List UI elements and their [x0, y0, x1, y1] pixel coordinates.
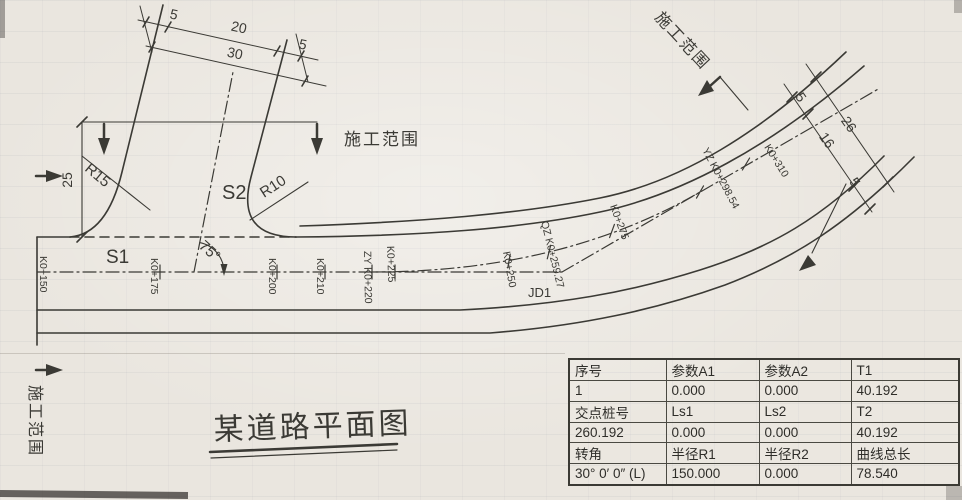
main-road-top-inner-edge: [296, 66, 864, 237]
dim-branch-right-5: 5: [298, 35, 309, 52]
cell-a2-value: 0.000: [759, 381, 851, 402]
table-row: 260.192 0.000 0.000 40.192: [569, 422, 959, 443]
station-k0250: K0+250: [500, 250, 518, 288]
angle-arc-arrowhead: [221, 264, 228, 276]
dim-right-26: 26: [838, 113, 860, 135]
dim-left-25: 25: [59, 172, 75, 188]
scan-artifact-top-right: [954, 0, 962, 13]
table-row: 30° 0′ 0″ (L) 150.000 0.000 78.540: [569, 464, 959, 485]
dim-branch-left-5: 5: [169, 5, 180, 22]
branch-right-edge-r10-fillet: [248, 40, 296, 237]
main-road-bottom-outer-edge: [37, 157, 914, 333]
label-s1: S1: [106, 247, 129, 268]
construction-limit-down-arrows: [98, 124, 323, 155]
table-row: 1 0.000 0.000 40.192: [569, 381, 959, 402]
cell-length-header: 曲线总长: [851, 443, 959, 464]
branch-centerline: [194, 72, 233, 272]
cell-r2-value: 0.000: [759, 464, 851, 485]
cell-jd-header: 交点桩号: [569, 401, 666, 422]
dim-right-top-5: 5: [792, 89, 810, 105]
station-ticks: [160, 158, 750, 279]
cell-length-value: 78.540: [851, 464, 959, 485]
station-zy-k0220: ZY K0+220: [361, 251, 374, 304]
cell-zhuanjiao-header: 转角: [569, 443, 666, 464]
cell-r1-value: 150.000: [666, 464, 759, 485]
cell-ls1-value: 0.000: [666, 422, 759, 443]
cell-a2-header: 参数A2: [759, 359, 851, 381]
dim-branch-20: 20: [230, 18, 249, 37]
scan-artifact-bottom-right: [946, 486, 962, 500]
cell-ls1-header: Ls1: [666, 401, 759, 422]
label-construction-scope-bottom-left: 施工范围: [26, 385, 44, 457]
cell-a1-value: 0.000: [666, 381, 759, 402]
cell-xuhao-header: 序号: [569, 359, 666, 381]
cell-t2-value: 40.192: [851, 422, 959, 443]
cell-jd-value: 260.192: [569, 422, 666, 443]
table-row: 转角 半径R1 半径R2 曲线总长: [569, 443, 959, 464]
table-row: 交点桩号 Ls1 Ls2 T2: [569, 401, 959, 422]
station-k0150: K0+150: [37, 256, 49, 293]
station-yz-k029854: YZ K0+298.54: [699, 146, 741, 211]
label-construction-scope-top-right: 施工范围: [651, 8, 713, 73]
paper-crease: [0, 353, 565, 354]
station-k0225: K0+225: [384, 246, 397, 283]
label-r15: R15: [81, 160, 113, 191]
cell-xuhao-value: 1: [569, 381, 666, 402]
cell-zhuanjiao-value: 30° 0′ 0″ (L): [569, 464, 666, 485]
station-k0210: K0+210: [314, 258, 326, 295]
dim-right-16: 16: [816, 129, 838, 151]
cell-a1-header: 参数A1: [666, 359, 759, 381]
curve-parameter-table: 序号 参数A1 参数A2 T1 1 0.000 0.000 40.192 交点桩…: [568, 358, 960, 486]
station-qz-k025927: QZ K0+259.27: [538, 220, 566, 290]
scan-artifact-top-left: [0, 0, 5, 38]
label-s2: S2: [222, 182, 246, 204]
cell-r2-header: 半径R2: [759, 443, 851, 464]
main-centerline-curve: [372, 192, 700, 272]
cell-t1-value: 40.192: [851, 381, 959, 402]
main-road-bottom-inner-edge: [37, 156, 884, 310]
station-k0175: K0+175: [148, 258, 160, 295]
cell-ls2-value: 0.000: [759, 422, 851, 443]
cell-t1-header: T1: [851, 359, 959, 381]
dim-branch-30: 30: [226, 44, 245, 63]
table-row: 序号 参数A1 参数A2 T1: [569, 359, 959, 381]
station-k0310: K0+310: [761, 142, 791, 179]
cell-r1-header: 半径R1: [666, 443, 759, 464]
limit-arrow-top-right: [698, 77, 748, 110]
station-k0200: K0+200: [266, 258, 278, 295]
page-title: 某道路平面图: [213, 407, 412, 447]
cell-ls2-header: Ls2: [759, 401, 851, 422]
cell-t2-header: T2: [851, 401, 959, 422]
label-construction-scope-mid: 施工范围: [344, 130, 420, 149]
label-jd1: JD1: [528, 285, 551, 300]
